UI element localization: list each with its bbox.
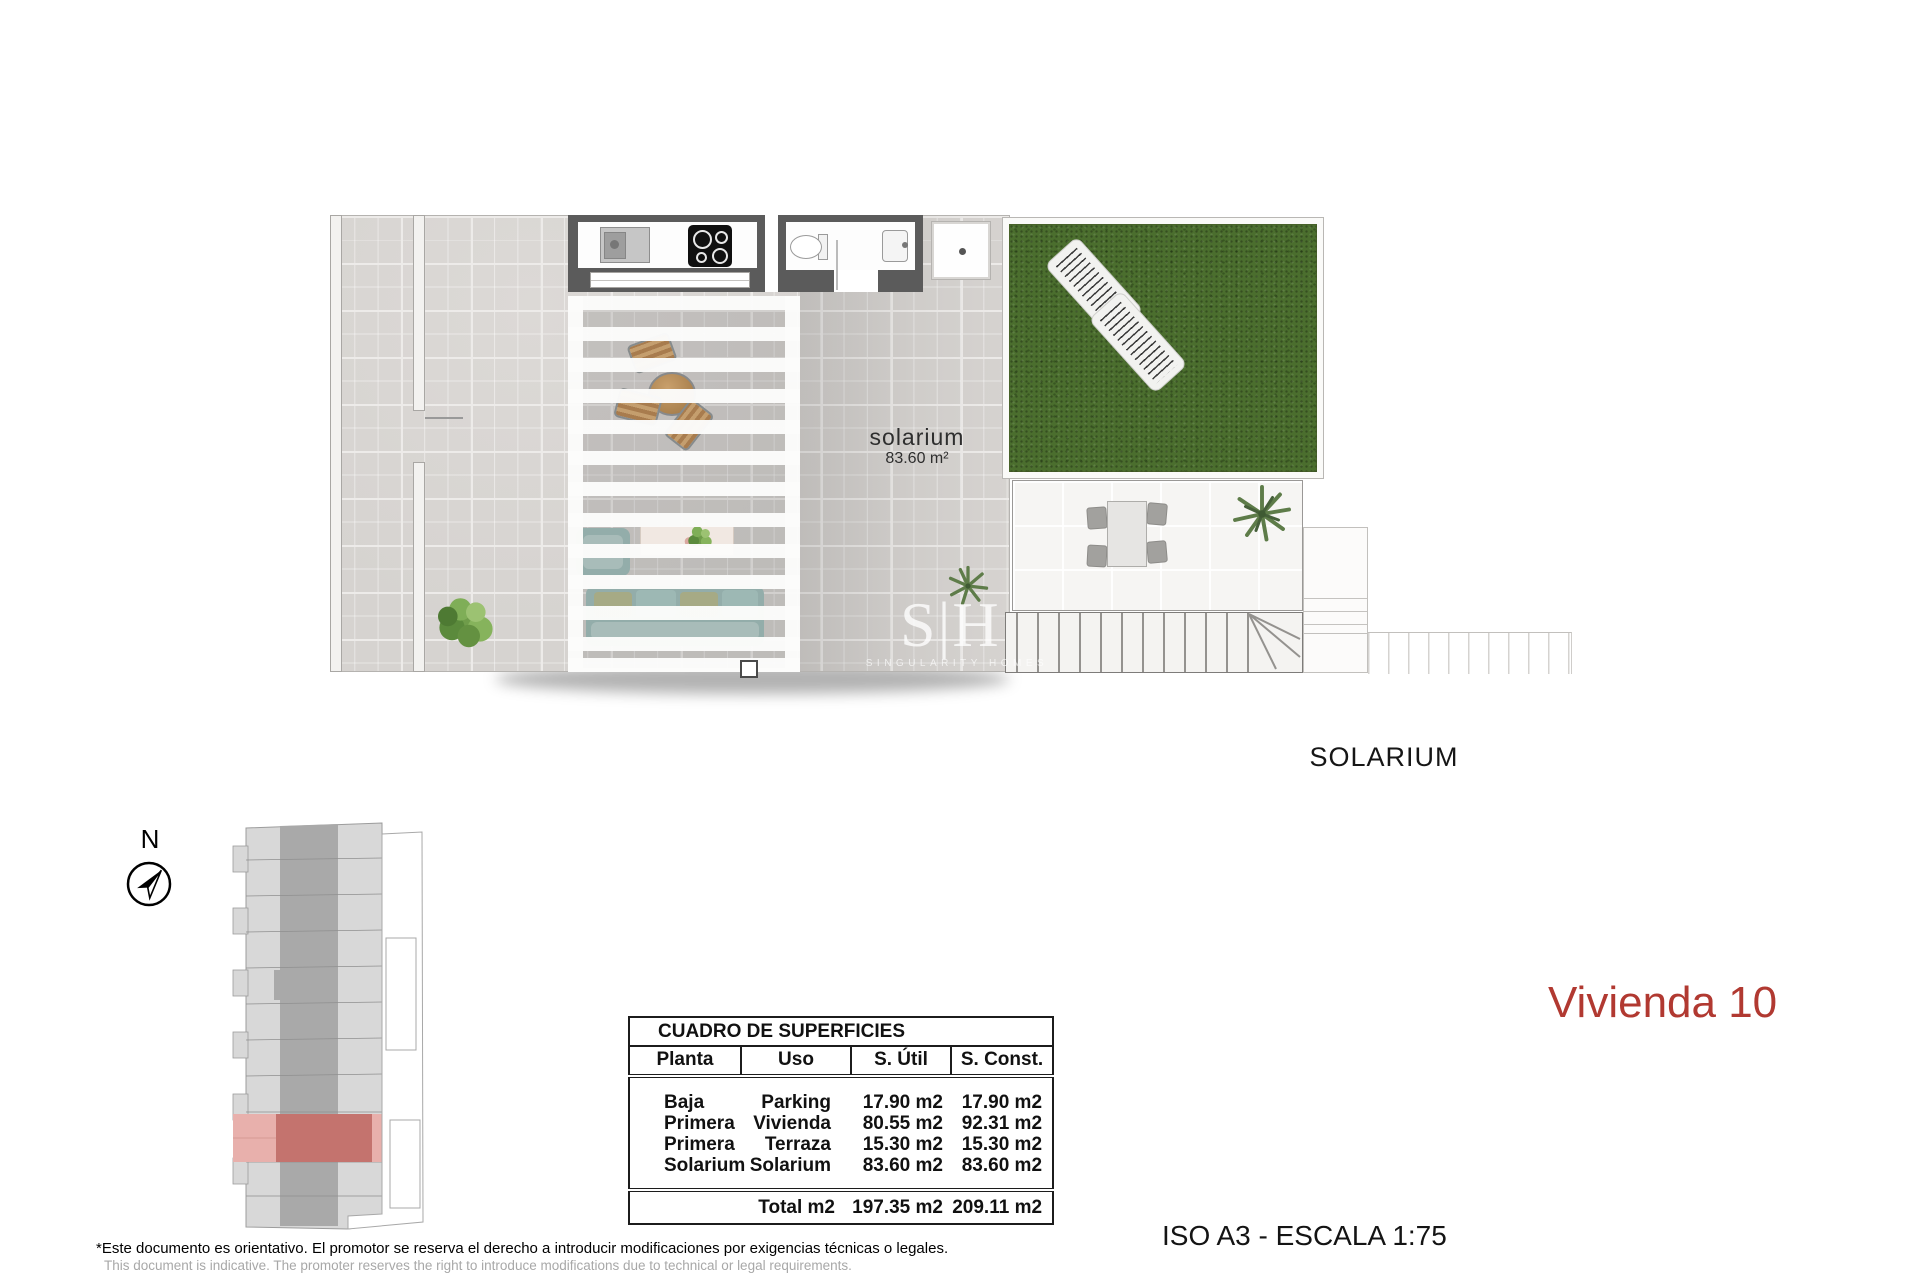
col-header-uso: Uso (741, 1046, 851, 1076)
drain-icon (740, 660, 758, 678)
hob-icon (688, 225, 732, 267)
table-row: Primera Vivienda 80.55 m2 92.31 m2 (629, 1113, 1053, 1134)
table-row: Primera Terraza 15.30 m2 15.30 m2 (629, 1134, 1053, 1155)
doorway-gap (765, 215, 778, 292)
outer-wall-left (330, 215, 342, 672)
total-const: 209.11 m2 (951, 1190, 1053, 1224)
sink-icon (600, 227, 650, 263)
neighbour-stairs (1368, 632, 1572, 674)
stair-landing (1303, 527, 1368, 634)
shower-drain (959, 248, 966, 255)
table-row: Solarium Solarium 83.60 m2 83.60 m2 (629, 1155, 1053, 1190)
site-plan (230, 820, 425, 1232)
gate-swing-line (425, 417, 463, 419)
plan-sheet: solarium 83.60 m² S|H SINGULARITY HOMES … (0, 0, 1920, 1280)
kitchen-glass-door (590, 272, 750, 288)
col-header-util: S. Útil (851, 1046, 951, 1076)
unit-title: Vivienda 10 (1548, 978, 1777, 1028)
watermark-logo: S|H (900, 588, 1001, 662)
bush-plant-icon (438, 594, 494, 650)
dining-chair (1086, 544, 1107, 567)
col-header-const: S. Const. (951, 1046, 1053, 1076)
faucet-icon (610, 240, 619, 249)
dining-table (1107, 501, 1147, 567)
table-total-row: Total m2 197.35 m2 209.11 m2 (629, 1190, 1053, 1224)
scale-note: ISO A3 - ESCALA 1:75 (1162, 1220, 1447, 1252)
basin-faucet (902, 242, 908, 248)
toilet-icon (790, 235, 822, 259)
pergola-rail-left (568, 296, 583, 672)
dining-chair (1086, 506, 1107, 529)
room-name-label: solarium (855, 424, 979, 451)
disclaimer-en: This document is indicative. The promote… (104, 1258, 852, 1273)
lower-terrace (1012, 480, 1303, 611)
total-label: Total m2 (741, 1190, 851, 1224)
bathroom-opening (834, 270, 878, 292)
pergola-slats (568, 296, 800, 672)
winder-steps (1248, 613, 1302, 671)
landing-lower (1303, 634, 1368, 673)
table-row: Baja Parking 17.90 m2 17.90 m2 (629, 1076, 1053, 1113)
grass-lawn (1003, 218, 1323, 478)
dining-chair (1146, 502, 1168, 526)
watermark-name: SINGULARITY HOMES (862, 658, 1052, 669)
party-wall-lower (413, 462, 425, 672)
party-wall-upper (413, 215, 425, 411)
palm-tree-icon (1227, 481, 1297, 547)
table-header-row: Planta Uso S. Útil S. Const. (629, 1046, 1053, 1076)
table-title: CUADRO DE SUPERFICIES (629, 1017, 1053, 1046)
room-area-label: 83.60 m² (855, 450, 979, 468)
dining-chair (1146, 540, 1168, 564)
door-swing-line (836, 240, 838, 290)
floor-caption: SOLARIUM (1259, 742, 1509, 773)
pergola-rail-bottom (568, 658, 800, 672)
total-util: 197.35 m2 (851, 1190, 951, 1224)
north-arrow-icon (121, 856, 177, 912)
pergola-rail-right (785, 296, 800, 672)
col-header-planta: Planta (629, 1046, 741, 1076)
shower-tray (932, 222, 990, 279)
landing-steps (1304, 586, 1367, 632)
disclaimer-es: *Este documento es orientativo. El promo… (96, 1240, 948, 1257)
surfaces-table: CUADRO DE SUPERFICIES Planta Uso S. Útil… (628, 1016, 1054, 1225)
north-label: N (128, 824, 172, 855)
dining-set (1089, 495, 1167, 589)
table-title-row: CUADRO DE SUPERFICIES (629, 1017, 1053, 1046)
